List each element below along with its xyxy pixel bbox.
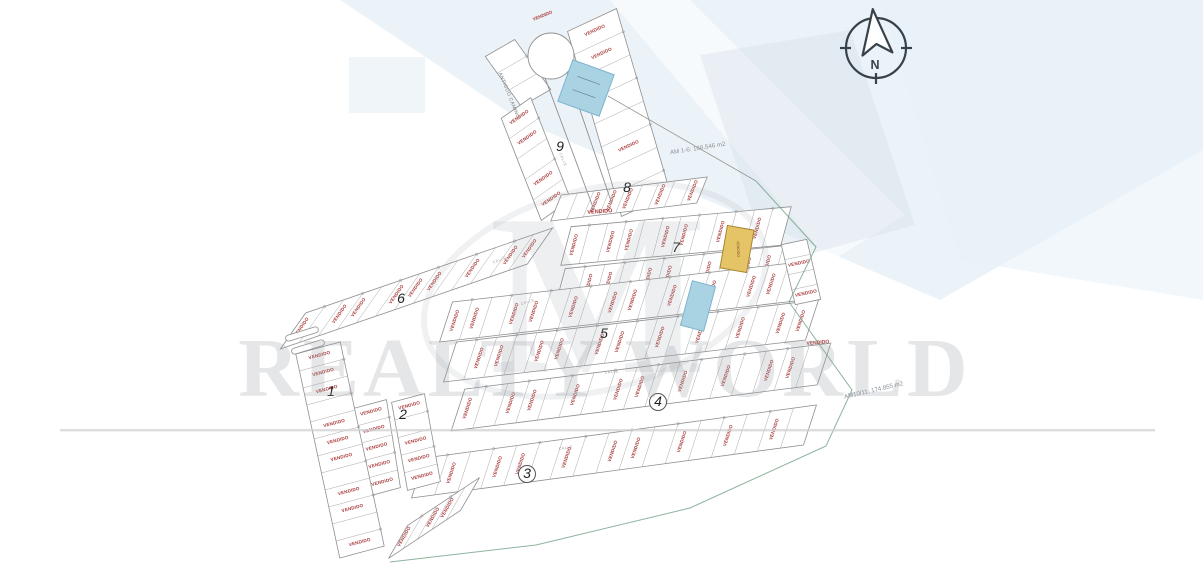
- watermark-underline: [60, 429, 1155, 431]
- road-name-label: CALLE: [558, 152, 567, 167]
- block-number-label: 6: [397, 290, 405, 306]
- background-square: [349, 57, 425, 113]
- cul-de-sac-circle: [528, 33, 574, 79]
- block-number-6: 6: [397, 290, 405, 306]
- block-number-label: 3: [523, 465, 531, 481]
- watermark-brand-text: REALTY WORLD: [238, 322, 971, 415]
- plat-map-image: VENDIDOVENDIDOVENDIDOVENDIDOVENDIDOVENDI…: [0, 0, 1203, 569]
- highlight-lot-label: VENDIDO: [736, 241, 741, 258]
- block-number-9: 9: [556, 138, 564, 154]
- block-number-3: 3: [519, 465, 536, 483]
- block-number-label: 9: [556, 138, 564, 154]
- subdivision-map-canvas: VENDIDOVENDIDOVENDIDOVENDIDOVENDIDOVENDI…: [0, 0, 1203, 569]
- compass-north-label: N: [870, 58, 879, 72]
